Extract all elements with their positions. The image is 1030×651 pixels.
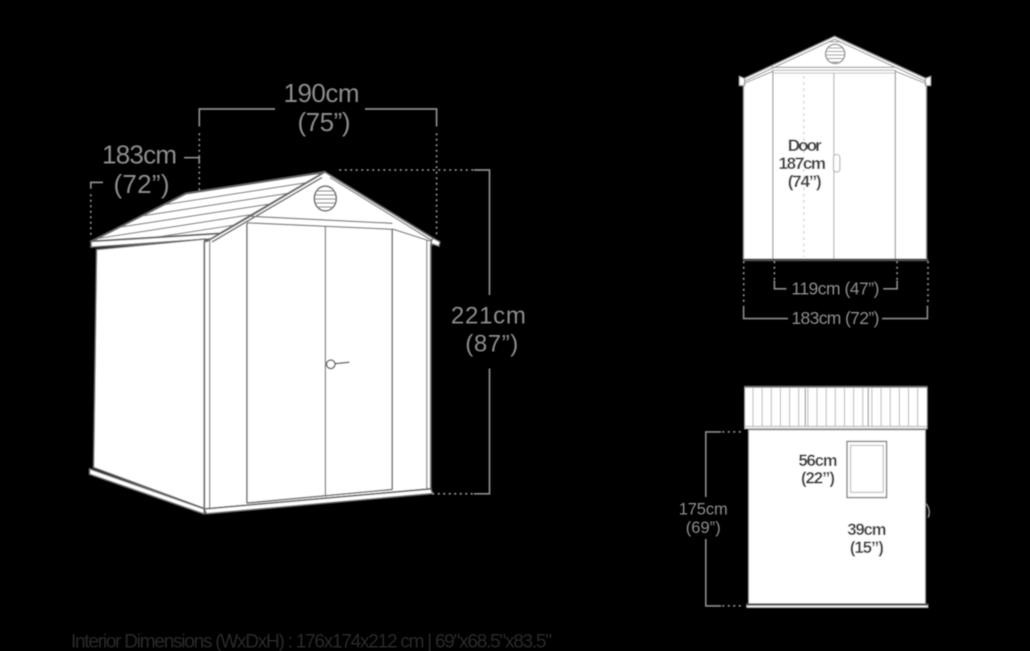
svg-text:(69”): (69”): [686, 519, 721, 537]
svg-text:(15”): (15”): [850, 539, 884, 557]
svg-text:(74”): (74”): [788, 172, 822, 191]
svg-text:Interior Dimensions (WxDxH) :: Interior Dimensions (WxDxH) : 176x174x21…: [71, 632, 552, 651]
svg-text:190cm: 190cm: [284, 78, 360, 108]
svg-text:(22”): (22”): [801, 470, 835, 488]
svg-text:183cm (72”): 183cm (72”): [791, 308, 879, 328]
svg-text:119cm (47”): 119cm (47”): [791, 279, 879, 299]
svg-text:39cm: 39cm: [847, 521, 886, 539]
svg-text:(87”): (87”): [465, 331, 518, 358]
svg-text:Door: Door: [788, 136, 822, 155]
svg-text:(75”): (75”): [298, 107, 351, 137]
svg-text:187cm: 187cm: [779, 154, 827, 173]
svg-text:221cm: 221cm: [451, 303, 526, 330]
svg-text:56cm: 56cm: [799, 452, 838, 470]
svg-text:175cm: 175cm: [679, 501, 728, 519]
svg-text:183cm: 183cm: [102, 140, 177, 170]
svg-text:(72”): (72”): [114, 169, 170, 199]
